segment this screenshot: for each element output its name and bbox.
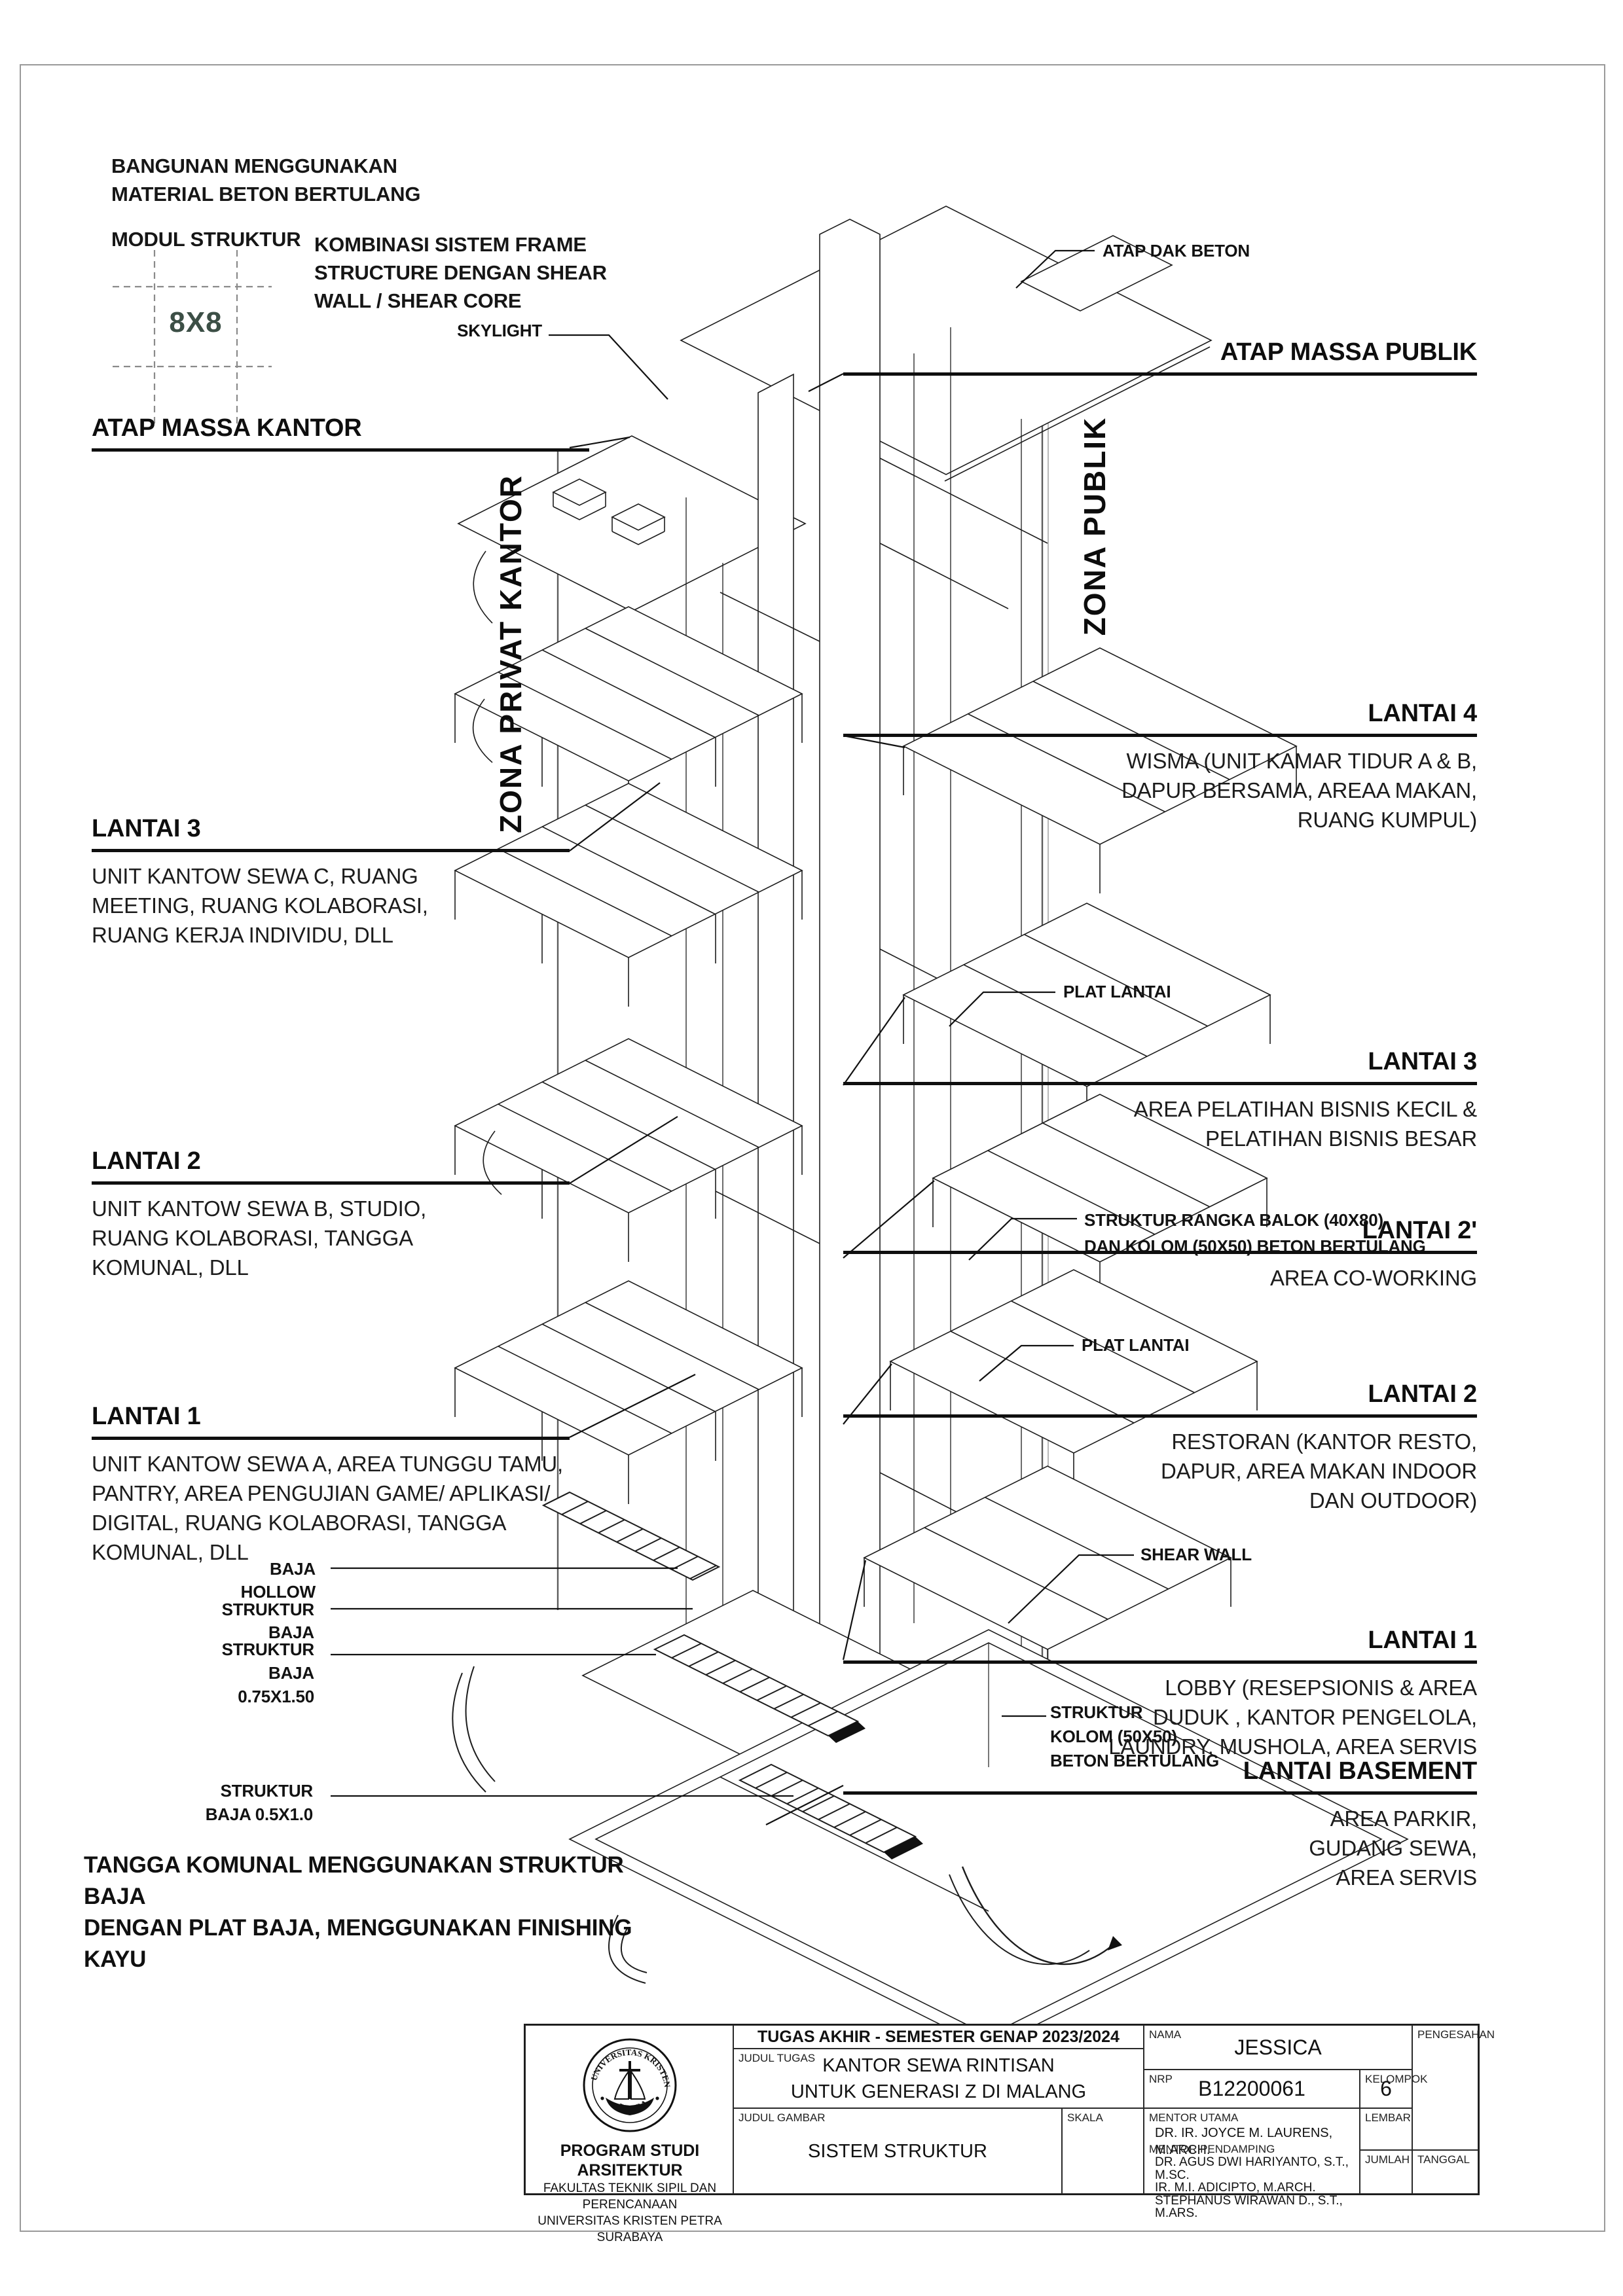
callout-plat-lantai-upper: PLAT LANTAI (1063, 980, 1171, 1003)
pengesahan-label: PENGESAHAN (1417, 2028, 1495, 2041)
level-left-lantai-3: LANTAI 3 UNIT KANTOW SEWA C, RUANG MEETI… (92, 814, 570, 950)
titleblock-nrp-cell: NRP B12200061 (1144, 2070, 1360, 2108)
title-block: UNIVERSITAS KRISTEN PETRA PROGRAM STUDI … (524, 2024, 1480, 2195)
level-right-lantai-4: LANTAI 4 WISMA (UNIT KAMAR TIDUR A & B, … (843, 699, 1477, 834)
level-title: LANTAI 2 (92, 1147, 570, 1175)
institution-program: PROGRAM STUDI ARSITEKTUR (528, 2141, 731, 2180)
level-right-atap-massa-publik: ATAP MASSA PUBLIK (843, 338, 1477, 376)
level-rule (92, 1437, 570, 1440)
nama-value: JESSICA (1144, 2026, 1412, 2069)
titleblock-skala-cell: SKALA (1062, 2108, 1144, 2194)
level-desc: RESTORAN (KANTOR RESTO, DAPUR, AREA MAKA… (843, 1427, 1477, 1515)
level-title: ATAP MASSA KANTOR (92, 414, 589, 442)
skala-label: SKALA (1067, 2111, 1103, 2125)
project-header: TUGAS AKHIR - SEMESTER GENAP 2023/2024 (734, 2026, 1143, 2048)
mentor-pendamping-value: DR. AGUS DWI HARIYANTO, S.T., M.SC. IR. … (1155, 2156, 1359, 2220)
level-rule (843, 1660, 1477, 1664)
nrp-label: NRP (1149, 2073, 1173, 2086)
level-title: LANTAI BASEMENT (843, 1757, 1477, 1785)
note-material: BANGUNAN MENGGUNAKAN MATERIAL BETON BERT… (111, 152, 517, 208)
university-seal-logo: UNIVERSITAS KRISTEN PETRA (581, 2036, 679, 2134)
titleblock-institution-cell: UNIVERSITAS KRISTEN PETRA PROGRAM STUDI … (525, 2025, 733, 2194)
level-left-atap-massa-kantor: ATAP MASSA KANTOR (92, 414, 589, 452)
module-structure-label: MODUL STRUKTUR (111, 225, 301, 253)
level-rule (92, 448, 589, 452)
titleblock-header-cell: TUGAS AKHIR - SEMESTER GENAP 2023/2024 (733, 2025, 1144, 2049)
level-title: ATAP MASSA PUBLIK (843, 338, 1477, 367)
level-desc: UNIT KANTOW SEWA C, RUANG MEETING, RUANG… (92, 861, 570, 950)
level-title: LANTAI 3 (92, 814, 570, 843)
lembar-label: LEMBAR (1365, 2111, 1411, 2125)
institution-university: UNIVERSITAS KRISTEN PETRA (528, 2213, 731, 2229)
tanggal-label: TANGGAL (1417, 2153, 1470, 2166)
callout-shear-wall: SHEAR WALL (1140, 1543, 1252, 1566)
level-rule (843, 1791, 1477, 1795)
drawing-sheet: { "accent_color": "#3c4f46", "notes": { … (0, 0, 1623, 2296)
zone-label-publik: ZONA PUBLIK (1077, 414, 1112, 639)
institution-text: PROGRAM STUDI ARSITEKTUR FAKULTAS TEKNIK… (528, 2141, 731, 2246)
nrp-value: B12200061 (1144, 2070, 1359, 2108)
level-rule (843, 734, 1477, 737)
level-desc: UNIT KANTOW SEWA A, AREA TUNGGU TAMU, PA… (92, 1449, 570, 1567)
callout-struktur-baja-05: STRUKTUR BAJA 0.5X1.0 (189, 1779, 313, 1826)
level-title: LANTAI 4 (843, 699, 1477, 728)
level-rule (92, 1181, 570, 1185)
level-desc: AREA PARKIR, GUDANG SEWA, AREA SERVIS (843, 1804, 1477, 1892)
titleblock-nama-cell: NAMA JESSICA (1144, 2025, 1412, 2070)
titleblock-judul-gambar-cell: JUDUL GAMBAR SISTEM STRUKTUR (733, 2108, 1062, 2194)
level-desc: AREA CO-WORKING (843, 1263, 1477, 1293)
level-desc: UNIT KANTOW SEWA B, STUDIO, RUANG KOLABO… (92, 1194, 570, 1282)
level-right-lantai-2-aksen: LANTAI 2' AREA CO-WORKING (843, 1216, 1477, 1293)
note-frame-system: KOMBINASI SISTEM FRAME STRUCTURE DENGAN … (314, 230, 681, 315)
note-tangga-komunal: TANGGA KOMUNAL MENGGUNAKAN STRUKTUR BAJA… (84, 1850, 673, 1975)
level-rule (843, 1082, 1477, 1085)
titleblock-jumlah-cell: JUMLAH (1360, 2150, 1412, 2194)
level-right-lantai-basement: LANTAI BASEMENT AREA PARKIR, GUDANG SEWA… (843, 1757, 1477, 1892)
titleblock-tanggal-cell: TANGGAL (1412, 2150, 1478, 2194)
level-rule (843, 1251, 1477, 1254)
zone-label-privat-kantor: ZONA PRIVAT KANTOR (493, 465, 528, 842)
level-rule (92, 849, 570, 852)
titleblock-mentor-cell: MENTOR UTAMA DR. IR. JOYCE M. LAURENS, M… (1144, 2108, 1360, 2194)
level-title: LANTAI 3 (843, 1047, 1477, 1076)
level-title: LANTAI 2' (843, 1216, 1477, 1245)
level-left-lantai-2: LANTAI 2 UNIT KANTOW SEWA B, STUDIO, RUA… (92, 1147, 570, 1282)
judul-tugas-label: JUDUL TUGAS (739, 2052, 815, 2065)
callout-atap-dak-beton: ATAP DAK BETON (1103, 240, 1250, 262)
institution-faculty: FAKULTAS TEKNIK SIPIL DAN PERENCANAAN (528, 2180, 731, 2213)
level-desc: WISMA (UNIT KAMAR TIDUR A & B, DAPUR BER… (843, 746, 1477, 834)
level-right-lantai-3: LANTAI 3 AREA PELATIHAN BISNIS KECIL & P… (843, 1047, 1477, 1153)
mentor-pendamping-label: MENTOR PENDAMPING (1149, 2143, 1275, 2156)
callout-plat-lantai-lower: PLAT LANTAI (1082, 1334, 1189, 1357)
level-title: LANTAI 1 (843, 1626, 1477, 1655)
level-rule (843, 1414, 1477, 1418)
level-left-lantai-1: LANTAI 1 UNIT KANTOW SEWA A, AREA TUNGGU… (92, 1402, 570, 1567)
level-title: LANTAI 1 (92, 1402, 570, 1431)
mentor-utama-label: MENTOR UTAMA (1149, 2111, 1238, 2125)
nama-label: NAMA (1149, 2028, 1181, 2041)
module-structure-value: 8X8 (155, 306, 237, 339)
titleblock-lembar-cell: LEMBAR (1360, 2108, 1412, 2150)
judul-gambar-label: JUDUL GAMBAR (739, 2111, 826, 2125)
callout-skylight: SKYLIGHT (419, 319, 542, 342)
titleblock-judul-tugas-cell: JUDUL TUGAS KANTOR SEWA RINTISAN UNTUK G… (733, 2049, 1144, 2108)
level-desc: LOBBY (RESEPSIONIS & AREA DUDUK , KANTOR… (843, 1673, 1477, 1761)
callout-struktur-baja-075: STRUKTUR BAJA 0.75X1.50 (190, 1638, 314, 1708)
titleblock-pengesahan-cell: PENGESAHAN (1412, 2025, 1478, 2150)
institution-city: SURABAYA (528, 2229, 731, 2246)
level-rule (843, 372, 1477, 376)
titleblock-kelompok-cell: KELOMPOK 6 (1360, 2070, 1412, 2108)
jumlah-label: JUMLAH (1365, 2153, 1410, 2166)
level-desc: AREA PELATIHAN BISNIS KECIL & PELATIHAN … (843, 1094, 1477, 1153)
level-right-lantai-2: LANTAI 2 RESTORAN (KANTOR RESTO, DAPUR, … (843, 1380, 1477, 1515)
level-right-lantai-1: LANTAI 1 LOBBY (RESEPSIONIS & AREA DUDUK… (843, 1626, 1477, 1761)
level-title: LANTAI 2 (843, 1380, 1477, 1408)
